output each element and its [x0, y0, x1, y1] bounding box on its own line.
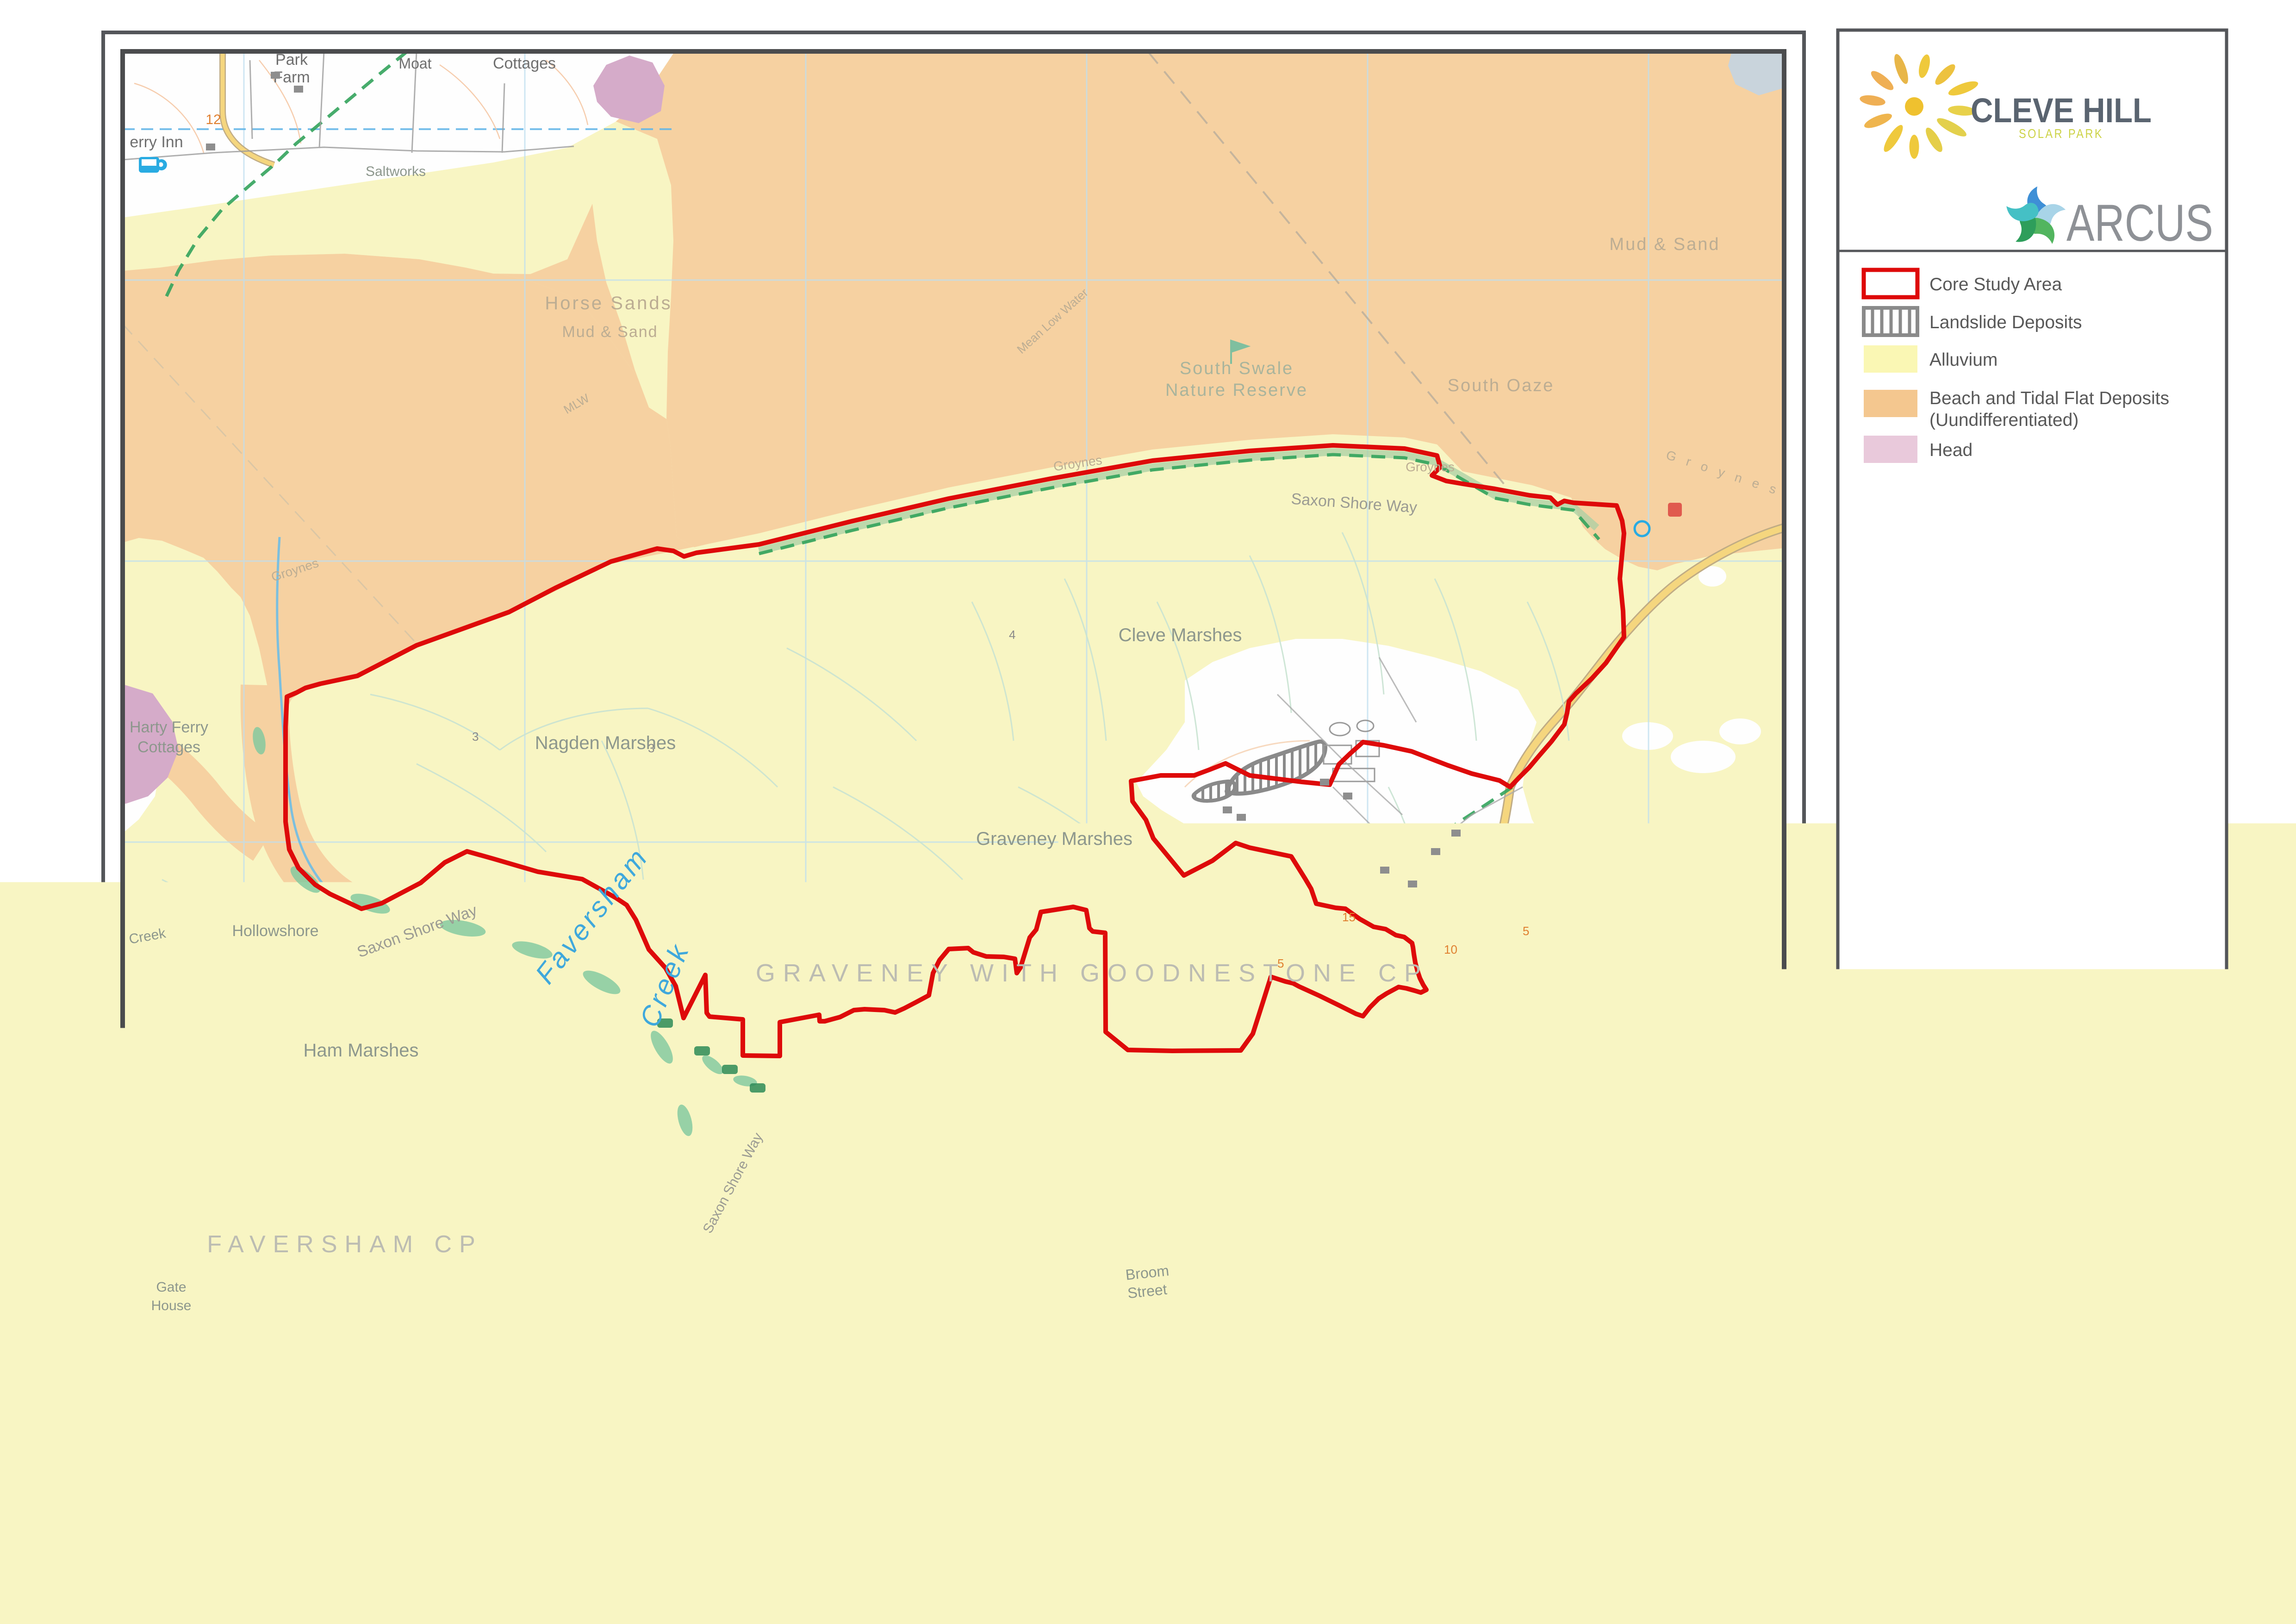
svg-text:Sandbanks: Sandbanks: [956, 1182, 1030, 1199]
svg-text:Nagden Marshes: Nagden Marshes: [535, 733, 676, 753]
svg-text:Cleve Hill: Cleve Hill: [1267, 787, 1341, 806]
svg-text:Horse Sands: Horse Sands: [545, 293, 672, 313]
svg-text:Hill: Hill: [1321, 862, 1345, 881]
svg-text:South Swale: South Swale: [1180, 359, 1294, 378]
svg-text:Gravel: Gravel: [127, 1192, 168, 1207]
svg-text:7: 7: [1532, 1135, 1538, 1149]
svg-text:Scale @ A3: Scale @ A3: [1918, 1240, 1991, 1255]
svg-text:m: m: [2032, 1283, 2043, 1299]
svg-text:9: 9: [1264, 1423, 1272, 1438]
svg-text:Sheepfold: Sheepfold: [425, 1123, 496, 1140]
svg-text:Farm: Farm: [1573, 1486, 1612, 1505]
svg-text:Mud & Sand: Mud & Sand: [1609, 235, 1720, 254]
svg-text:Brookhill: Brookhill: [1724, 1096, 1784, 1114]
svg-text:Denley Hill Farm: Denley Hill Farm: [1456, 986, 1580, 1005]
svg-text:4: 4: [1009, 628, 1015, 642]
svg-text:HM HC: HM HC: [359, 1470, 447, 1497]
svg-text:Schs: Schs: [251, 1532, 282, 1547]
svg-text:GRAVENEY WITH GOODNESTONE CP: GRAVENEY WITH GOODNESTONE CP: [756, 959, 1429, 987]
svg-text:Coney: Coney: [1228, 1095, 1271, 1112]
svg-text:Sandbanks: Sandbanks: [1004, 1209, 1074, 1224]
svg-text:Ham Farm: Ham Farm: [329, 1147, 403, 1165]
svg-text:Hollowshore: Hollowshore: [232, 922, 318, 940]
svg-text:10: 10: [1444, 943, 1457, 956]
svg-text:Sch: Sch: [1277, 1287, 1301, 1302]
svg-text:Beach and Tidal Flat Deposits: Beach and Tidal Flat Deposits: [1929, 388, 2169, 408]
svg-text:Substation: Substation: [1214, 738, 1289, 756]
svg-text:Graveney Marshes: Graveney Marshes: [976, 829, 1132, 849]
svg-text:Cottages: Cottages: [835, 1157, 894, 1174]
svg-text:Date: 09/05/2018: Date: 09/05/2018: [2046, 1348, 2163, 1365]
svg-text:Farm: Farm: [1469, 1245, 1502, 1261]
svg-text:FAVERSHAM: FAVERSHAM: [454, 1514, 601, 1534]
svg-text:Farm: Farm: [1736, 1115, 1772, 1132]
svg-text:Moat: Moat: [398, 55, 431, 72]
svg-text:Cottages: Cottages: [137, 738, 200, 756]
svg-text:Sewage: Sewage: [526, 1447, 580, 1464]
svg-text:Gate: Gate: [156, 1280, 186, 1295]
svg-text:15: 15: [1342, 910, 1356, 924]
svg-text:3: 3: [648, 741, 654, 755]
svg-text:Sandbanks: Sandbanks: [828, 1139, 902, 1156]
svg-text:Brook: Brook: [1587, 1051, 1626, 1068]
svg-text:Wharf: Wharf: [400, 1386, 438, 1401]
svg-text:(Uundifferentiated): (Uundifferentiated): [1929, 410, 2078, 430]
svg-text:The Old: The Old: [1350, 1250, 1403, 1267]
svg-text:Warm: Warm: [928, 990, 969, 1007]
svg-text:Superficial Geology: Superficial Geology: [1930, 1411, 2134, 1435]
svg-text:Cleve Hill: Cleve Hill: [1218, 720, 1285, 737]
svg-text:Head: Head: [1929, 440, 1972, 460]
svg-text:Works: Works: [657, 1312, 699, 1328]
svg-text:Groynes: Groynes: [1406, 460, 1455, 474]
svg-text:3: 3: [472, 730, 479, 743]
svg-text:Denly: Denly: [1668, 941, 1709, 958]
svg-text:Pumping Station: Pumping Station: [499, 1466, 608, 1482]
svg-text:1:17,500: 1:17,500: [1850, 1240, 1904, 1255]
svg-text:CLEVE HILL: CLEVE HILL: [1971, 91, 2152, 130]
svg-text:12: 12: [1349, 1198, 1363, 1212]
svg-text:House: House: [926, 1008, 971, 1026]
svg-text:Bridge: Bridge: [1585, 1069, 1628, 1086]
svg-text:Hill: Hill: [1677, 959, 1699, 977]
svg-text:Goodnestone: Goodnestone: [993, 1482, 1076, 1498]
svg-text:P: P: [141, 1080, 150, 1095]
svg-text:House: House: [1161, 1315, 1207, 1332]
svg-text:Ham Marshes: Ham Marshes: [304, 1040, 419, 1061]
svg-text:FBs: FBs: [1756, 1347, 1780, 1362]
svg-text:Nagden Cottages: Nagden Cottages: [726, 1018, 848, 1035]
svg-text:The: The: [230, 1311, 258, 1330]
svg-text:Core Study Area: Core Study Area: [1929, 275, 2062, 294]
svg-text:Murtons: Murtons: [1461, 1229, 1511, 1244]
svg-text:Mud & Sand: Mud & Sand: [562, 323, 658, 341]
svg-text:FAVERSHAM CP: FAVERSHAM CP: [207, 1231, 483, 1258]
svg-text:erry Inn: erry Inn: [130, 133, 183, 151]
svg-text:5: 5: [1523, 924, 1529, 938]
svg-text:Saltworks: Saltworks: [366, 164, 426, 179]
svg-text:House: House: [151, 1298, 192, 1313]
svg-text:N: N: [2200, 1244, 2214, 1264]
svg-text:Works: Works: [128, 1210, 167, 1225]
svg-text:South Oaze: South Oaze: [1448, 376, 1555, 395]
svg-text:Goodnestone: Goodnestone: [1020, 1528, 1173, 1551]
svg-text:Cleve Marshes: Cleve Marshes: [1119, 625, 1242, 645]
svg-text:Works: Works: [518, 1315, 560, 1332]
svg-text:Nature Reserve: Nature Reserve: [1165, 381, 1308, 400]
svg-text:Information Report: Information Report: [1932, 1530, 2132, 1555]
svg-text:BREWERY: BREWERY: [174, 1504, 251, 1519]
svg-text:Horse Hill Farm: Horse Hill Farm: [1660, 1216, 1756, 1231]
svg-text:Alluvium: Alluvium: [1929, 350, 1997, 370]
svg-text:0: 0: [1850, 1283, 1858, 1299]
svg-text:Reproduced from Ordnance Surve: Reproduced from Ordnance Survey digital …: [82, 927, 95, 1570]
svg-text:Brents: Brents: [220, 1331, 268, 1350]
svg-text:Harty Ferry: Harty Ferry: [130, 718, 208, 736]
svg-text:Wey Street: Wey Street: [1551, 1466, 1633, 1485]
svg-text:Produced By: SC: Produced By: SC: [1851, 1316, 1968, 1333]
svg-text:Banks: Banks: [1229, 1113, 1270, 1130]
svg-text:. 9: . 9: [1677, 927, 1692, 942]
svg-text:Graveney: Graveney: [1295, 842, 1371, 862]
svg-text:5: 5: [1277, 956, 1284, 970]
svg-text:Court: Court: [1250, 1514, 1286, 1531]
svg-text:2: 2: [1648, 1054, 1654, 1068]
svg-text:Court: Court: [1017, 1499, 1052, 1515]
svg-text:12: 12: [205, 112, 221, 127]
svg-text:Figure 10.3: Figure 10.3: [1985, 1437, 2079, 1458]
svg-text:NTL: NTL: [383, 1421, 409, 1436]
svg-text:Culmers: Culmers: [1322, 1363, 1381, 1381]
svg-text:Vicarage: Vicarage: [1348, 1268, 1406, 1285]
svg-text:Ref: 2238-REP-116: Ref: 2238-REP-116: [2046, 1316, 2178, 1333]
svg-text:Landslide Deposits: Landslide Deposits: [1929, 312, 2082, 332]
svg-text:16: 16: [1196, 1273, 1210, 1287]
svg-text:250: 250: [1919, 1283, 1942, 1299]
svg-text:Nagden: Nagden: [707, 990, 762, 1007]
svg-text:ARCUS: ARCUS: [2066, 194, 2213, 252]
svg-text:Cottages: Cottages: [1186, 827, 1245, 843]
svg-text:Cottages: Cottages: [493, 55, 556, 72]
svg-text:Checked By: LN: Checked By: LN: [1851, 1348, 1961, 1365]
svg-text:500: 500: [1997, 1283, 2020, 1299]
svg-text:SOLAR PARK: SOLAR PARK: [2019, 126, 2103, 141]
svg-text:P:\Projects\Hydrology\Hydrolog: P:\Projects\Hydrology\Hydrology EIA\2238…: [104, 1585, 644, 1599]
svg-text:5: 5: [1694, 977, 1700, 991]
